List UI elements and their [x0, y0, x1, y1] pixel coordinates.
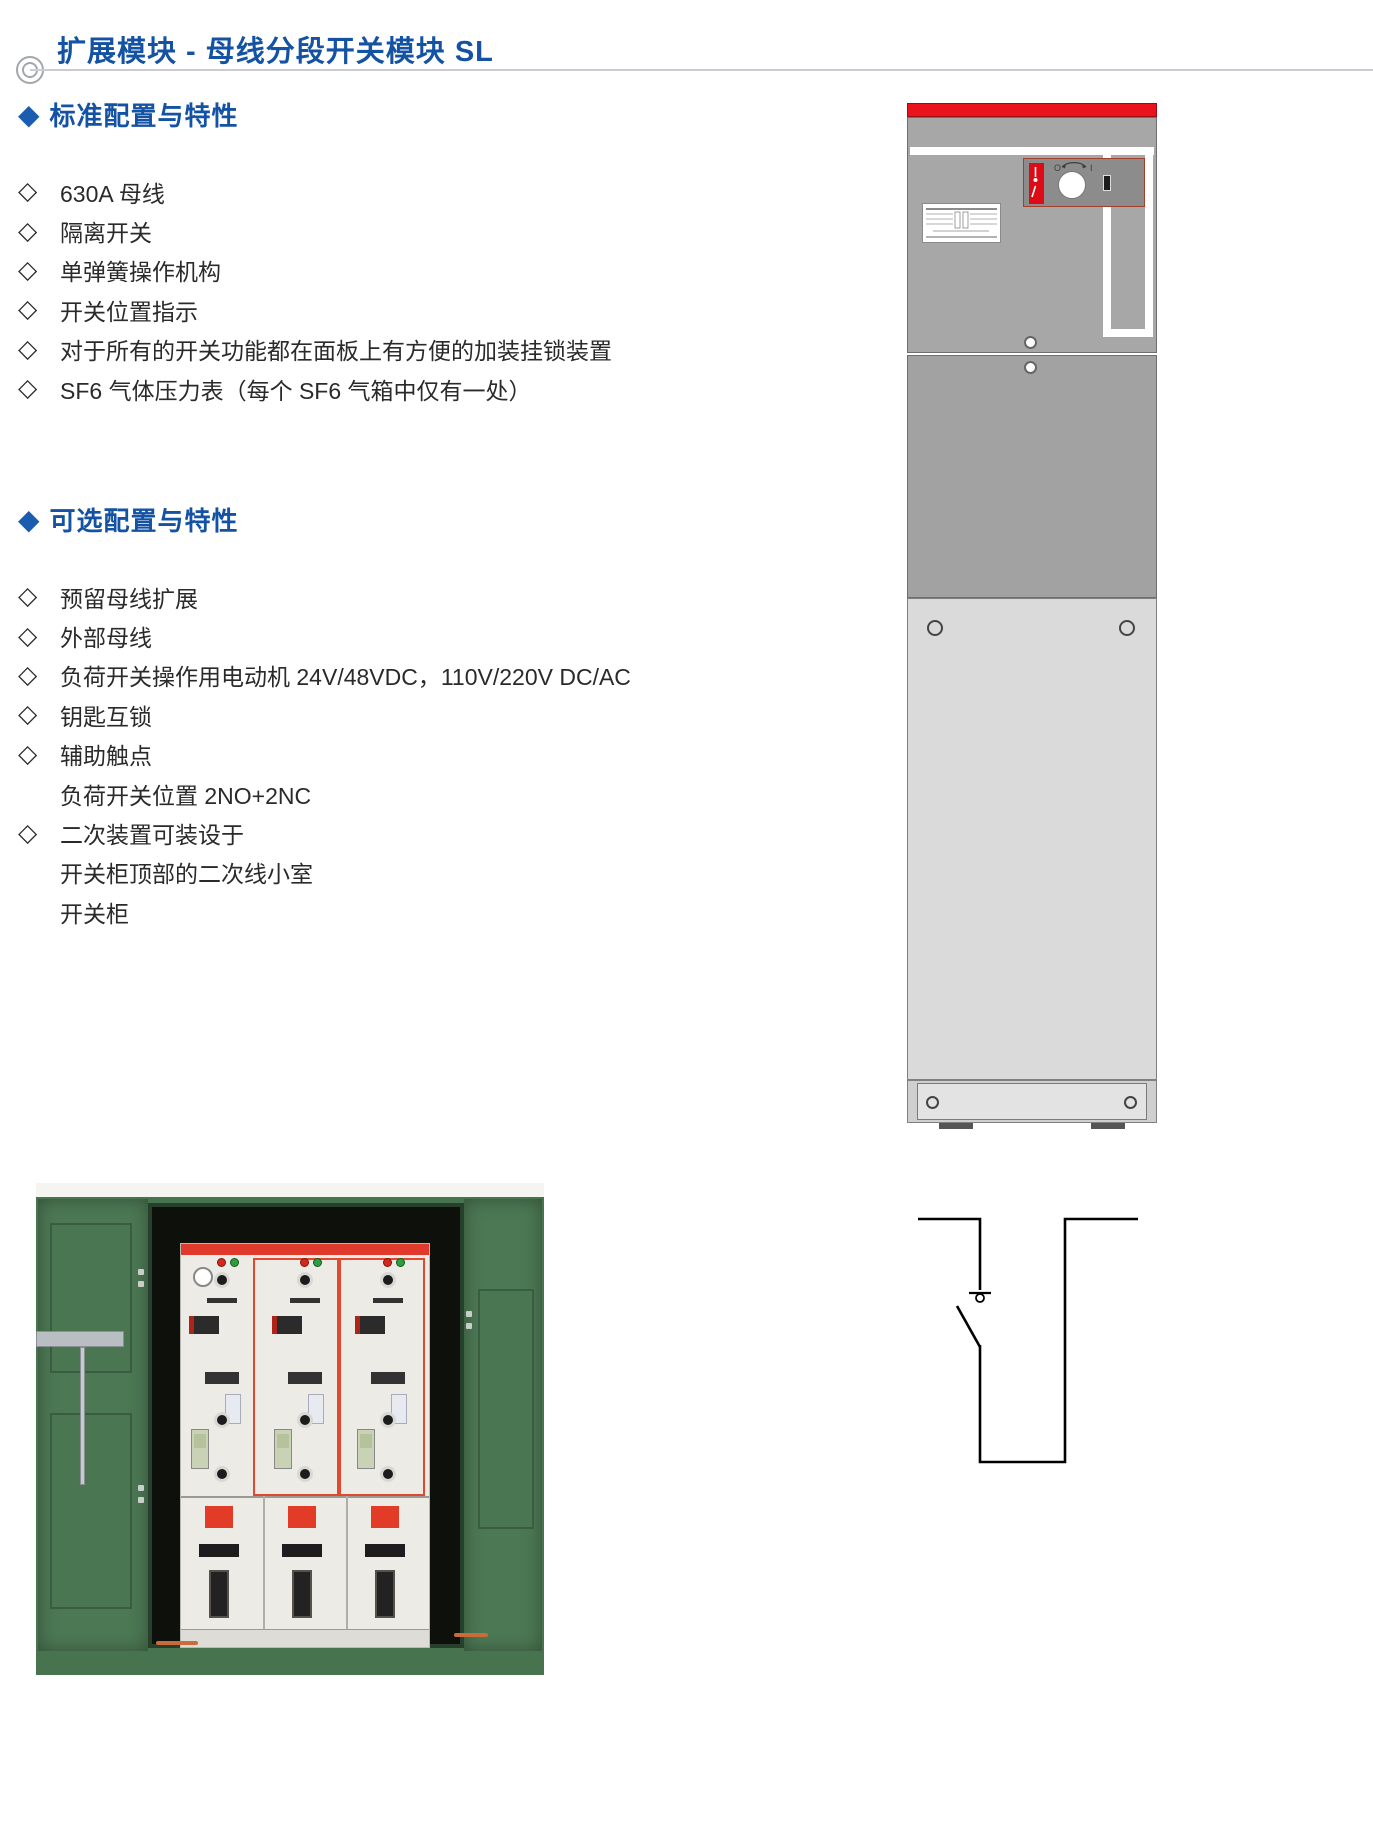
list-item-label: 二次装置可装设于	[60, 816, 244, 850]
protection-relay	[272, 1316, 302, 1334]
hollow-diamond-icon: ◇	[18, 219, 60, 244]
door-latch-bracket	[36, 1331, 124, 1347]
hollow-diamond-icon: ◇	[18, 663, 60, 688]
list-item: ◇单弹簧操作机构	[18, 251, 678, 290]
vent-slot	[205, 1372, 239, 1384]
door-panel	[50, 1223, 132, 1373]
warning-sticker	[205, 1506, 233, 1528]
warning-sticker	[288, 1506, 316, 1528]
door-slot	[199, 1544, 239, 1557]
ring-main-unit	[180, 1243, 430, 1648]
door-slot	[365, 1544, 405, 1557]
list-item: ◇预留母线扩展	[18, 577, 678, 616]
operating-knob	[297, 1272, 313, 1288]
hinge	[138, 1269, 144, 1275]
cabinet-red-top-bar	[907, 103, 1157, 117]
hinge	[138, 1485, 144, 1491]
knob-slot	[207, 1298, 237, 1303]
list-item: ◇SF6 气体压力表（每个 SF6 气箱中仅有一处）	[18, 369, 678, 408]
bay-separator	[346, 1496, 348, 1647]
operating-knob	[380, 1272, 396, 1288]
operating-knob	[214, 1466, 230, 1482]
door-handle	[292, 1570, 312, 1618]
lcd-meter	[191, 1429, 209, 1469]
hinge	[466, 1323, 472, 1329]
cabinet-foot	[939, 1123, 973, 1129]
hinge	[138, 1497, 144, 1503]
operating-knob	[380, 1412, 396, 1428]
cabinet-middle-door	[907, 355, 1157, 598]
busbar-mimic-stripe	[1103, 329, 1153, 337]
operating-knob	[297, 1412, 313, 1428]
lcd-meter	[357, 1429, 375, 1469]
panel-bolt-hole	[927, 620, 943, 636]
red-indicator	[383, 1258, 392, 1267]
hollow-diamond-icon: ◇	[18, 702, 60, 727]
list-item: ◇二次装置可装设于	[18, 813, 678, 852]
header-divider	[30, 69, 1373, 71]
list-item: ◇开关位置指示	[18, 290, 678, 329]
list-item-label: 预留母线扩展	[60, 580, 198, 614]
section-heading-standard: ◆ 标准配置与特性	[18, 96, 239, 133]
hollow-diamond-icon: ◇	[18, 376, 60, 401]
door-knockout-hole	[1024, 336, 1037, 349]
list-item: ◇钥匙互锁	[18, 695, 678, 734]
protection-relay	[189, 1316, 219, 1334]
list-item: ◇630A 母线	[18, 172, 678, 211]
list-item-label: 对于所有的开关功能都在面板上有方便的加装挂锁装置	[60, 332, 612, 366]
section-heading-label: 标准配置与特性	[50, 96, 239, 133]
list-item-label: 隔离开关	[60, 214, 152, 248]
list-item: ◇隔离开关	[18, 211, 678, 250]
single-line-diagram	[900, 1205, 1150, 1475]
lcd-meter	[274, 1429, 292, 1469]
list-item-label: 负荷开关位置 2NO+2NC	[60, 777, 311, 811]
hinge	[466, 1311, 472, 1317]
enclosure-right-door	[464, 1199, 542, 1651]
rmu-plinth	[181, 1629, 429, 1647]
green-indicator	[230, 1258, 239, 1267]
ground-wire	[454, 1633, 488, 1637]
padlock-slot	[1103, 175, 1111, 191]
hinge	[138, 1281, 144, 1287]
list-item-label: 辅助触点	[60, 737, 152, 771]
cabinet-lower-panel	[907, 598, 1157, 1080]
pressure-gauge	[193, 1267, 213, 1287]
section-heading-optional: ◆ 可选配置与特性	[18, 501, 239, 538]
bay-separator	[263, 1496, 265, 1647]
green-indicator	[313, 1258, 322, 1267]
door-handle	[375, 1570, 395, 1618]
rotary-direction-markings: O I	[1024, 159, 1146, 208]
optional-feature-list: ◇预留母线扩展 ◇外部母线 ◇负荷开关操作用电动机 24V/48VDC，110V…	[18, 577, 678, 932]
hollow-diamond-icon: ◇	[18, 742, 60, 767]
standard-feature-list: ◇630A 母线 ◇隔离开关 ◇单弹簧操作机构 ◇开关位置指示 ◇对于所有的开关…	[18, 172, 678, 408]
section-heading-label: 可选配置与特性	[50, 501, 239, 538]
list-item-continuation: 负荷开关位置 2NO+2NC	[18, 774, 678, 813]
door-handle	[209, 1570, 229, 1618]
knob-slot	[373, 1298, 403, 1303]
busbar-mimic-stripe	[910, 147, 1154, 155]
base-bolt-hole	[926, 1096, 939, 1109]
off-label: O	[1054, 163, 1061, 173]
panel-bolt-hole	[1119, 620, 1135, 636]
knob-slot	[290, 1298, 320, 1303]
door-slot	[282, 1544, 322, 1557]
hollow-diamond-icon: ◇	[18, 179, 60, 204]
list-item-label: 630A 母线	[60, 175, 165, 209]
hollow-diamond-icon: ◇	[18, 337, 60, 362]
photo-switchgear-in-enclosure	[36, 1183, 544, 1675]
rmu-header-strip	[181, 1244, 429, 1255]
operating-knob	[380, 1466, 396, 1482]
cabinet-base-panel	[917, 1083, 1147, 1120]
operating-knob	[214, 1412, 230, 1428]
door-latch-rod	[80, 1347, 85, 1485]
operating-knob	[214, 1272, 230, 1288]
hollow-diamond-icon: ◇	[18, 297, 60, 322]
compartment-divider	[181, 1496, 429, 1498]
hollow-diamond-icon: ◇	[18, 821, 60, 846]
protection-relay	[355, 1316, 385, 1334]
operating-mimic-panel: O I	[1023, 158, 1145, 207]
catalog-page: 扩展模块 - 母线分段开关模块 SL ◆ 标准配置与特性 ◇630A 母线 ◇隔…	[0, 0, 1373, 1848]
door-panel	[50, 1413, 132, 1609]
red-indicator	[300, 1258, 309, 1267]
vent-slot	[371, 1372, 405, 1384]
list-item-label: 开关柜顶部的二次线小室	[60, 855, 313, 889]
hollow-diamond-icon: ◇	[18, 624, 60, 649]
list-item-continuation: 开关柜顶部的二次线小室	[18, 853, 678, 892]
list-item-label: 开关位置指示	[60, 293, 198, 327]
filled-diamond-icon: ◆	[18, 506, 40, 534]
cabinet-front-illustration: O I	[907, 103, 1157, 1129]
on-label: I	[1090, 163, 1093, 173]
enclosure-left-door	[38, 1199, 148, 1651]
hollow-diamond-icon: ◇	[18, 584, 60, 609]
rating-plate	[922, 203, 1001, 243]
vent-slot	[288, 1372, 322, 1384]
door-knockout-hole	[1024, 361, 1037, 374]
base-bolt-hole	[1124, 1096, 1137, 1109]
page-title: 扩展模块 - 母线分段开关模块 SL	[57, 28, 494, 70]
list-item: ◇外部母线	[18, 616, 678, 655]
filled-diamond-icon: ◆	[18, 101, 40, 129]
hollow-diamond-icon: ◇	[18, 258, 60, 283]
list-item-label: 负荷开关操作用电动机 24V/48VDC，110V/220V DC/AC	[60, 658, 631, 692]
list-item-label: SF6 气体压力表（每个 SF6 气箱中仅有一处）	[60, 372, 532, 406]
busbar-mimic-stripe	[1145, 147, 1153, 337]
red-indicator	[217, 1258, 226, 1267]
ground-wire	[156, 1641, 198, 1645]
list-item: ◇对于所有的开关功能都在面板上有方便的加装挂锁装置	[18, 330, 678, 369]
list-item: ◇辅助触点	[18, 735, 678, 774]
green-indicator	[396, 1258, 405, 1267]
operating-knob	[297, 1466, 313, 1482]
cabinet-foot	[1091, 1123, 1125, 1129]
list-item-label: 开关柜	[60, 895, 129, 929]
list-item: ◇负荷开关操作用电动机 24V/48VDC，110V/220V DC/AC	[18, 656, 678, 695]
warning-sticker	[371, 1506, 399, 1528]
list-item-continuation: 开关柜	[18, 892, 678, 931]
list-item-label: 外部母线	[60, 619, 152, 653]
door-panel	[478, 1289, 534, 1529]
list-item-label: 单弹簧操作机构	[60, 253, 221, 287]
list-item-label: 钥匙互锁	[60, 698, 152, 732]
